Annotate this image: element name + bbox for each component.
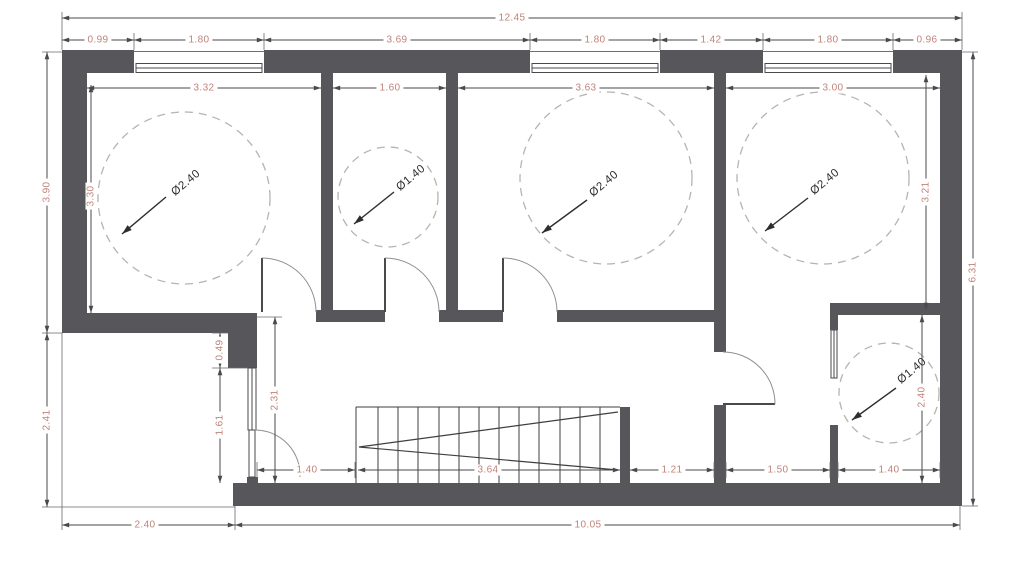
- dim-hall-mid: 1.21: [658, 465, 685, 476]
- turning-circles: [98, 92, 939, 443]
- dim-top-3: 1.80: [581, 35, 608, 46]
- wall-entry-step: [228, 333, 257, 368]
- plan-linework: [0, 0, 1035, 578]
- dim-stairs-run: 3.64: [474, 465, 501, 476]
- wall-right: [940, 50, 962, 506]
- wall-bottom: [233, 483, 962, 506]
- interior-walls: [316, 73, 940, 483]
- dim-right-height: 6.31: [968, 258, 979, 285]
- dim-top-6: 0.96: [913, 35, 940, 46]
- wall-room3-room4: [714, 73, 726, 352]
- wall-bath-left-upper: [830, 315, 838, 330]
- door-room2: [385, 258, 439, 312]
- wall-bath-left-lower: [830, 425, 838, 483]
- entry-door-jamb: [247, 477, 258, 483]
- circle-room1: [98, 112, 270, 284]
- dim-top-1: 1.80: [185, 35, 212, 46]
- door-room3: [503, 258, 557, 312]
- wall-hall-c: [557, 310, 714, 322]
- door-room4: [723, 352, 775, 404]
- exterior-walls: [62, 50, 962, 506]
- wall-hall-right-lower: [714, 405, 726, 483]
- dim-bottom-left: 2.40: [131, 520, 158, 531]
- window-entry: [248, 368, 256, 430]
- dim-room4-width: 3.00: [819, 83, 846, 94]
- dim-room2-width: 1.60: [376, 83, 403, 94]
- dim-bath-width: 1.40: [875, 465, 902, 476]
- dim-lobby: 1.50: [764, 465, 791, 476]
- window-3: [763, 50, 893, 73]
- wall-bath-top: [830, 303, 940, 315]
- window-1: [134, 50, 264, 73]
- wall-room2-room3: [446, 73, 458, 322]
- dim-entry-upper: 0.49: [215, 336, 226, 363]
- dim-room1-height: 3.30: [86, 182, 97, 209]
- floor-plan: 12.45 0.99 1.80 3.69 1.80 1.42 1.80 0.96…: [0, 0, 1035, 578]
- dim-overall-width: 12.45: [495, 13, 528, 24]
- window-2: [530, 50, 660, 73]
- wall-room1-room2: [321, 73, 333, 322]
- dim-entry-clear: 2.31: [270, 386, 281, 413]
- wall-stairs-post: [620, 407, 630, 483]
- dim-left-upper: 3.90: [42, 178, 53, 205]
- dim-top-5: 1.80: [814, 35, 841, 46]
- dim-bottom-right: 10.05: [571, 520, 604, 531]
- wall-room1-bottom: [62, 313, 257, 333]
- wall-left: [62, 50, 87, 333]
- radius-arrows: [122, 192, 896, 420]
- dim-room1-width: 3.32: [190, 83, 217, 94]
- dim-room3-width: 3.63: [572, 83, 599, 94]
- dim-bath-height: 2.40: [917, 383, 928, 410]
- dim-top-0: 0.99: [84, 35, 111, 46]
- windows: [134, 50, 893, 430]
- door-room1: [262, 258, 316, 312]
- dim-top-4: 1.42: [697, 35, 724, 46]
- dim-entry-window: 1.61: [215, 411, 226, 438]
- dim-top-2: 3.69: [383, 35, 410, 46]
- dim-left-lower: 2.41: [42, 406, 53, 433]
- wall-hall-a: [316, 310, 385, 322]
- dim-hall-left: 1.40: [293, 465, 320, 476]
- dim-room4-height: 3.21: [921, 178, 932, 205]
- window-bath: [831, 330, 837, 378]
- wall-hall-b: [439, 310, 503, 322]
